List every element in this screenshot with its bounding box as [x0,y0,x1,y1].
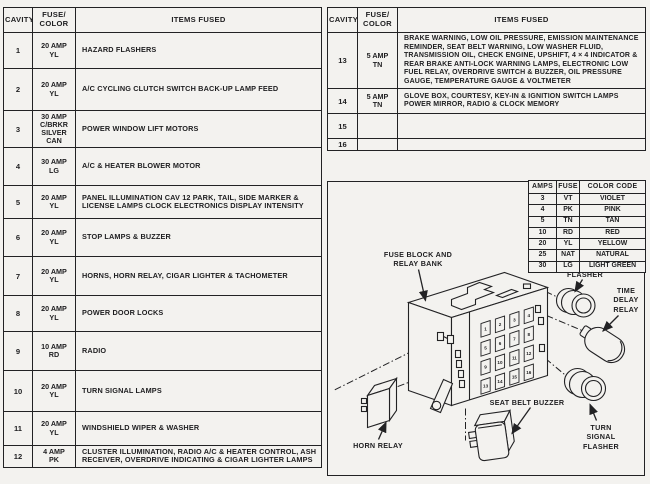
header-row: CAVITY FUSE/ COLOR ITEMS FUSED [4,8,322,33]
fuse-cell: RD [557,227,580,238]
table-row: 16 [328,139,646,151]
fuse-header: FUSE [557,181,580,194]
color-name-cell: NATURAL [580,250,646,261]
fuse-color-cell: 4 AMP PK [33,446,76,468]
fuse-color-cell: 20 AMP YL [33,412,76,446]
fuse-color-cell: 30 AMP C/BRKR SILVER CAN [33,111,76,148]
items-fused-cell: HORNS, HORN RELAY, CIGAR LIGHTER & TACHO… [76,257,322,296]
fuse-cell: TN [557,216,580,227]
table-row: 6 20 AMP YL STOP LAMPS & BUZZER [4,219,322,257]
cavity-cell: 6 [4,219,33,257]
cavity-cell: 1 [4,33,33,69]
table-row: 9 10 AMP RD RADIO [4,332,322,371]
table-row: 1 20 AMP YL HAZARD FLASHERS [4,33,322,69]
svg-text:14: 14 [497,379,503,384]
fuse-color-cell [358,114,398,139]
fuse-color-cell: 20 AMP YL [33,186,76,219]
svg-text:13: 13 [483,384,489,389]
fuse-color-cell: 5 AMP TN [358,89,398,114]
fuse-color-code-table: AMPS FUSE COLOR CODE 3 VT VIOLET 4 PK PI… [528,180,646,273]
svg-text:4: 4 [527,313,530,318]
svg-text:6: 6 [499,341,502,346]
fuse-color-cell: 20 AMP YL [33,219,76,257]
fuse-color-cell: 5 AMP TN [358,33,398,89]
cavity-cell: 11 [4,412,33,446]
cavity-cell: 7 [4,257,33,296]
cavity-cell: 14 [328,89,358,114]
amps-cell: 20 [529,239,557,250]
color-code-header: COLOR CODE [580,181,646,194]
fuse-block-shape: 12345678910111213141516 [409,273,548,413]
fuse-cell: LG [557,261,580,272]
turn-signal-flasher-shape [565,369,606,401]
color-name-cell: LIGHT GREEN [580,261,646,272]
color-name-cell: PINK [580,205,646,216]
cavity-cell: 4 [4,148,33,186]
items-fused-cell: A/C & HEATER BLOWER MOTOR [76,148,322,186]
table-row: 2 20 AMP YL A/C CYCLING CLUTCH SWITCH BA… [4,69,322,111]
table-row: 11 20 AMP YL WINDSHIELD WIPER & WASHER [4,412,322,446]
horn-relay-shape [362,379,397,428]
svg-text:9: 9 [484,365,487,370]
turn-signal-flasher-label: TURN SIGNAL FLASHER [571,423,631,451]
fuse-color-cell: 20 AMP YL [33,69,76,111]
fuse-color-cell: 20 AMP YL [33,296,76,332]
svg-text:5: 5 [484,346,487,351]
items-fused-cell: STOP LAMPS & BUZZER [76,219,322,257]
fuse-table-left: CAVITY FUSE/ COLOR ITEMS FUSED 1 20 AMP … [3,7,322,468]
fuse-cell: YL [557,239,580,250]
time-delay-relay-label: TIME DELAY RELAY [601,286,650,314]
svg-text:12: 12 [526,351,532,356]
items-fused-cell: PANEL ILLUMINATION CAV 12 PARK, TAIL, SI… [76,186,322,219]
table-row: 7 20 AMP YL HORNS, HORN RELAY, CIGAR LIG… [4,257,322,296]
items-fused-cell [398,139,646,151]
fuse-color-header: FUSE/ COLOR [33,8,76,33]
time-delay-relay-shape [575,319,629,367]
items-fused-cell: GLOVE BOX, COURTESY, KEY-IN & IGNITION S… [398,89,646,114]
cavity-header: CAVITY [328,8,358,33]
table-row: 5 TN TAN [529,216,646,227]
table-row: 14 5 AMP TN GLOVE BOX, COURTESY, KEY-IN … [328,89,646,114]
fuse-cell: NAT [557,250,580,261]
table-row: 4 30 AMP LG A/C & HEATER BLOWER MOTOR [4,148,322,186]
table-row: 12 4 AMP PK CLUSTER ILLUMINATION, RADIO … [4,446,322,468]
fuse-chart-page: CAVITY FUSE/ COLOR ITEMS FUSED 1 20 AMP … [0,0,650,484]
amps-cell: 4 [529,205,557,216]
color-name-cell: YELLOW [580,239,646,250]
cavity-cell: 10 [4,371,33,412]
fuse-block-label: FUSE BLOCK AND RELAY BANK [373,250,463,269]
amps-cell: 25 [529,250,557,261]
table-row: 10 RD RED [529,227,646,238]
color-name-cell: RED [580,227,646,238]
items-fused-cell [398,114,646,139]
cavity-cell: 5 [4,186,33,219]
fuse-color-cell: 20 AMP YL [33,257,76,296]
table-row: 3 30 AMP C/BRKR SILVER CAN POWER WINDOW … [4,111,322,148]
cavity-cell: 2 [4,69,33,111]
table-row: 10 20 AMP YL TURN SIGNAL LAMPS [4,371,322,412]
seat-belt-buzzer-label: SEAT BELT BUZZER [462,398,592,407]
table-row: 15 [328,114,646,139]
svg-text:11: 11 [512,356,517,361]
items-fused-cell: RADIO [76,332,322,371]
svg-text:8: 8 [527,332,530,337]
cavity-cell: 13 [328,33,358,89]
cavity-cell: 15 [328,114,358,139]
fuse-color-cell [358,139,398,151]
table-row: 5 20 AMP YL PANEL ILLUMINATION CAV 12 PA… [4,186,322,219]
fuse-color-cell: 20 AMP YL [33,371,76,412]
svg-text:1: 1 [484,327,487,332]
cavity-cell: 3 [4,111,33,148]
fuse-color-cell: 10 AMP RD [33,332,76,371]
svg-text:15: 15 [512,375,518,380]
fuse-cell: VT [557,194,580,205]
cavity-cell: 8 [4,296,33,332]
amps-cell: 30 [529,261,557,272]
table-row: 3 VT VIOLET [529,194,646,205]
svg-text:7: 7 [513,337,516,342]
amps-header: AMPS [529,181,557,194]
items-fused-cell: TURN SIGNAL LAMPS [76,371,322,412]
fuse-color-header: FUSE/ COLOR [358,8,398,33]
items-fused-cell: HAZARD FLASHERS [76,33,322,69]
svg-text:10: 10 [497,360,503,365]
cavity-cell: 12 [4,446,33,468]
fuse-cell: PK [557,205,580,216]
table-row: 25 NAT NATURAL [529,250,646,261]
table-row: 20 YL YELLOW [529,239,646,250]
amps-cell: 10 [529,227,557,238]
amps-cell: 3 [529,194,557,205]
table-row: 13 5 AMP TN BRAKE WARNING, LOW OIL PRESS… [328,33,646,89]
svg-text:16: 16 [526,370,532,375]
cavity-header: CAVITY [4,8,33,33]
items-fused-cell: POWER WINDOW LIFT MOTORS [76,111,322,148]
items-fused-header: ITEMS FUSED [76,8,322,33]
items-fused-cell: WINDSHIELD WIPER & WASHER [76,412,322,446]
fuse-table-right: CAVITY FUSE/ COLOR ITEMS FUSED 13 5 AMP … [327,7,646,151]
header-row: AMPS FUSE COLOR CODE [529,181,646,194]
color-name-cell: TAN [580,216,646,227]
cavity-cell: 16 [328,139,358,151]
seat-belt-buzzer-shape [466,411,516,463]
items-fused-cell: A/C CYCLING CLUTCH SWITCH BACK-UP LAMP F… [76,69,322,111]
table-row: 8 20 AMP YL POWER DOOR LOCKS [4,296,322,332]
cavity-cell: 9 [4,332,33,371]
color-name-cell: VIOLET [580,194,646,205]
items-fused-cell: CLUSTER ILLUMINATION, RADIO A/C & HEATER… [76,446,322,468]
fuse-color-cell: 30 AMP LG [33,148,76,186]
horn-relay-label: HORN RELAY [338,441,418,450]
svg-text:3: 3 [513,318,516,323]
table-row: 30 LG LIGHT GREEN [529,261,646,272]
items-fused-header: ITEMS FUSED [398,8,646,33]
fuse-color-cell: 20 AMP YL [33,33,76,69]
header-row: CAVITY FUSE/ COLOR ITEMS FUSED [328,8,646,33]
items-fused-cell: BRAKE WARNING, LOW OIL PRESSURE, EMISSIO… [398,33,646,89]
items-fused-cell: POWER DOOR LOCKS [76,296,322,332]
amps-cell: 5 [529,216,557,227]
hazard-flasher-shape [557,289,596,318]
table-row: 4 PK PINK [529,205,646,216]
svg-text:2: 2 [499,322,502,327]
